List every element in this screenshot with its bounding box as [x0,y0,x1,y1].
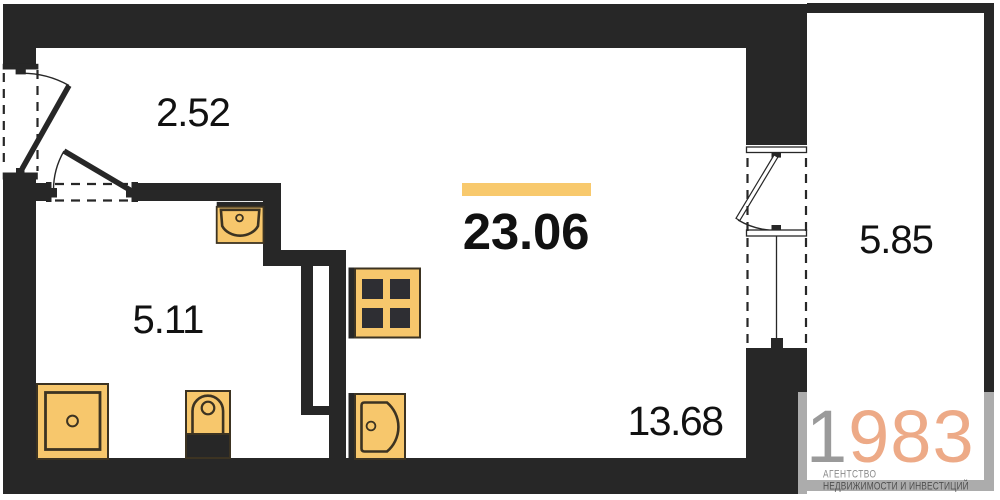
svg-text:5.11: 5.11 [133,298,204,342]
svg-text:2.52: 2.52 [156,91,230,135]
svg-text:НЕДВИЖИМОСТИ И ИНВЕСТИЦИЙ: НЕДВИЖИМОСТИ И ИНВЕСТИЦИЙ [823,478,969,493]
svg-text:1983: 1983 [806,395,975,478]
svg-text:АГЕНТСТВО: АГЕНТСТВО [823,468,876,480]
svg-text:23.06: 23.06 [463,203,590,260]
svg-text:13.68: 13.68 [627,398,723,444]
svg-text:5.85: 5.85 [859,218,933,262]
